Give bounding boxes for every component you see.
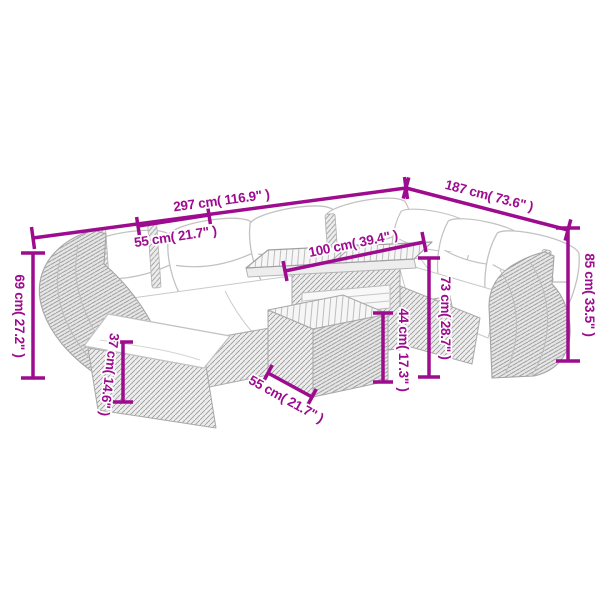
dim-label-left-arm-height: 69 cm( 27.2" ) [12, 274, 27, 357]
diagram-canvas: 297 cm( 116.9" ) 187 cm( 73.6" ) 55 cm( … [0, 0, 600, 600]
table-box-side [313, 314, 388, 397]
dim-tick [32, 227, 35, 249]
dim-label-overall-width: 297 cm( 116.9" ) [172, 187, 270, 215]
dim-label-back-height: 85 cm( 33.5" ) [582, 253, 597, 336]
dimension-diagram: 297 cm( 116.9" ) 187 cm( 73.6" ) 55 cm( … [0, 0, 600, 600]
dim-label-table-total-height: 73 cm( 28.7" ) [438, 276, 453, 359]
dim-label-table-lower-height: 44 cm( 17.3" ) [396, 308, 411, 391]
